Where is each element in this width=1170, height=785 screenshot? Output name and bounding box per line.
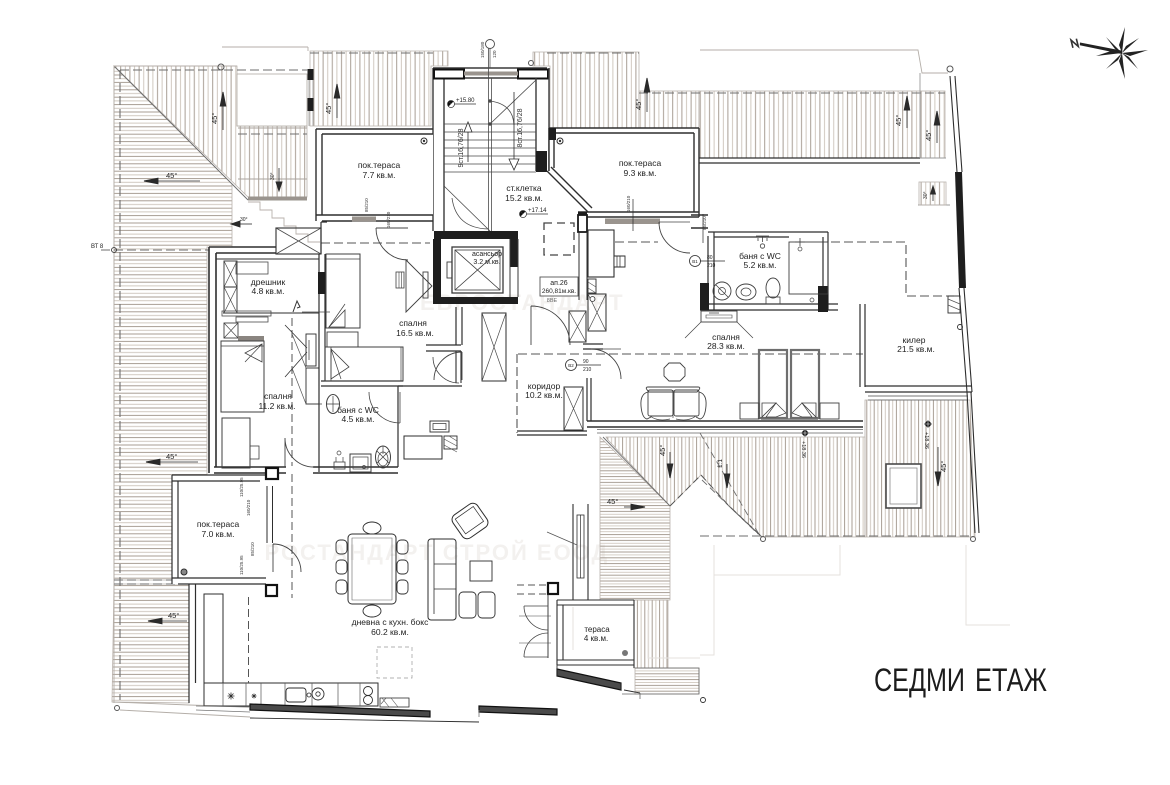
svg-text:1:1: 1:1 <box>717 459 724 468</box>
svg-text:СЕДМИ: СЕДМИ <box>874 662 965 698</box>
svg-text:45°: 45° <box>607 497 618 506</box>
svg-text:пок.тераса: пок.тераса <box>197 519 240 529</box>
svg-text:260,81м.кв.: 260,81м.кв. <box>542 288 576 295</box>
svg-text:30°: 30° <box>270 172 276 180</box>
svg-text:160/210: 160/210 <box>626 195 631 212</box>
svg-text:4.5 кв.м.: 4.5 кв.м. <box>342 414 375 424</box>
svg-text:28.3 кв.м.: 28.3 кв.м. <box>707 341 745 351</box>
svg-text:9ст.16,76/28: 9ст.16,76/28 <box>458 128 465 167</box>
svg-text:ЕТАЖ: ЕТАЖ <box>975 662 1047 698</box>
svg-text:В2: В2 <box>568 363 574 368</box>
svg-text:8ст.16,76/28: 8ст.16,76/28 <box>517 108 524 147</box>
svg-text:80: 80 <box>707 255 713 261</box>
svg-text:пок.тераса: пок.тераса <box>358 160 401 170</box>
svg-text:30°: 30° <box>240 217 248 223</box>
svg-text:8ВЕ: 8ВЕ <box>547 298 558 304</box>
svg-text:пок.тераса: пок.тераса <box>619 158 662 168</box>
svg-text:45°: 45° <box>166 452 177 461</box>
svg-text:45°: 45° <box>634 99 643 110</box>
svg-text:45°: 45° <box>894 115 903 126</box>
svg-text:спалня: спалня <box>399 318 427 328</box>
svg-text:7.7 кв.м.: 7.7 кв.м. <box>363 170 396 180</box>
svg-text:9.3 кв.м.: 9.3 кв.м. <box>624 168 657 178</box>
svg-text:210: 210 <box>583 367 592 373</box>
svg-text:ст.клетка: ст.клетка <box>506 183 542 193</box>
svg-text:45°: 45° <box>658 445 667 456</box>
svg-text:45°: 45° <box>168 611 179 620</box>
svg-text:ЕВРОСТАНДАРТ СТРОЙ ЕООД: ЕВРОСТАНДАРТ СТРОЙ ЕООД <box>230 540 609 565</box>
svg-text:120: 120 <box>492 50 497 58</box>
svg-text:15.2 кв.м.: 15.2 кв.м. <box>505 193 543 203</box>
svg-text:ап.26: ап.26 <box>550 280 568 287</box>
svg-text:45°: 45° <box>324 103 333 114</box>
svg-text:85/210: 85/210 <box>250 542 255 556</box>
svg-text:45°: 45° <box>210 113 219 124</box>
svg-text:тераса: тераса <box>584 625 610 634</box>
svg-text:60.2 кв.м.: 60.2 кв.м. <box>371 627 409 637</box>
svg-text:10.2 кв.м.: 10.2 кв.м. <box>525 390 563 400</box>
svg-text:5.2 кв.м.: 5.2 кв.м. <box>744 260 777 270</box>
svg-text:В1: В1 <box>692 259 698 264</box>
svg-text:+18.36: +18.36 <box>923 432 929 449</box>
svg-text:85/210: 85/210 <box>364 198 369 212</box>
svg-text:110/25.95: 110/25.95 <box>239 477 244 497</box>
svg-text:+18.36: +18.36 <box>800 441 806 458</box>
svg-text:90: 90 <box>583 359 589 365</box>
svg-text:30°: 30° <box>923 191 929 199</box>
svg-text:4.8 кв.м.: 4.8 кв.м. <box>252 286 285 296</box>
svg-text:110/25.95: 110/25.95 <box>239 555 244 575</box>
svg-text:45°: 45° <box>166 171 177 180</box>
svg-text:210: 210 <box>707 263 716 269</box>
svg-text:+17.14: +17.14 <box>528 208 547 214</box>
svg-text:45°: 45° <box>939 461 948 472</box>
svg-text:160/210: 160/210 <box>246 499 251 516</box>
svg-text:дневна с кухн. бокс: дневна с кухн. бокс <box>352 617 429 627</box>
svg-text:+15.80: +15.80 <box>456 98 475 104</box>
svg-text:спалня: спалня <box>264 391 292 401</box>
svg-text:ВТ 8: ВТ 8 <box>91 244 104 250</box>
svg-text:21.5 кв.м.: 21.5 кв.м. <box>897 344 935 354</box>
svg-text:4 кв.м.: 4 кв.м. <box>584 634 608 643</box>
svg-text:7.0 кв.м.: 7.0 кв.м. <box>202 529 235 539</box>
svg-text:3.2 м.кв.: 3.2 м.кв. <box>473 259 500 266</box>
svg-text:16.5 кв.м.: 16.5 кв.м. <box>396 328 434 338</box>
svg-text:асансьор: асансьор <box>472 251 502 258</box>
svg-text:45°: 45° <box>924 130 933 141</box>
svg-text:150/180: 150/180 <box>480 41 485 58</box>
svg-text:160/210: 160/210 <box>386 211 391 228</box>
